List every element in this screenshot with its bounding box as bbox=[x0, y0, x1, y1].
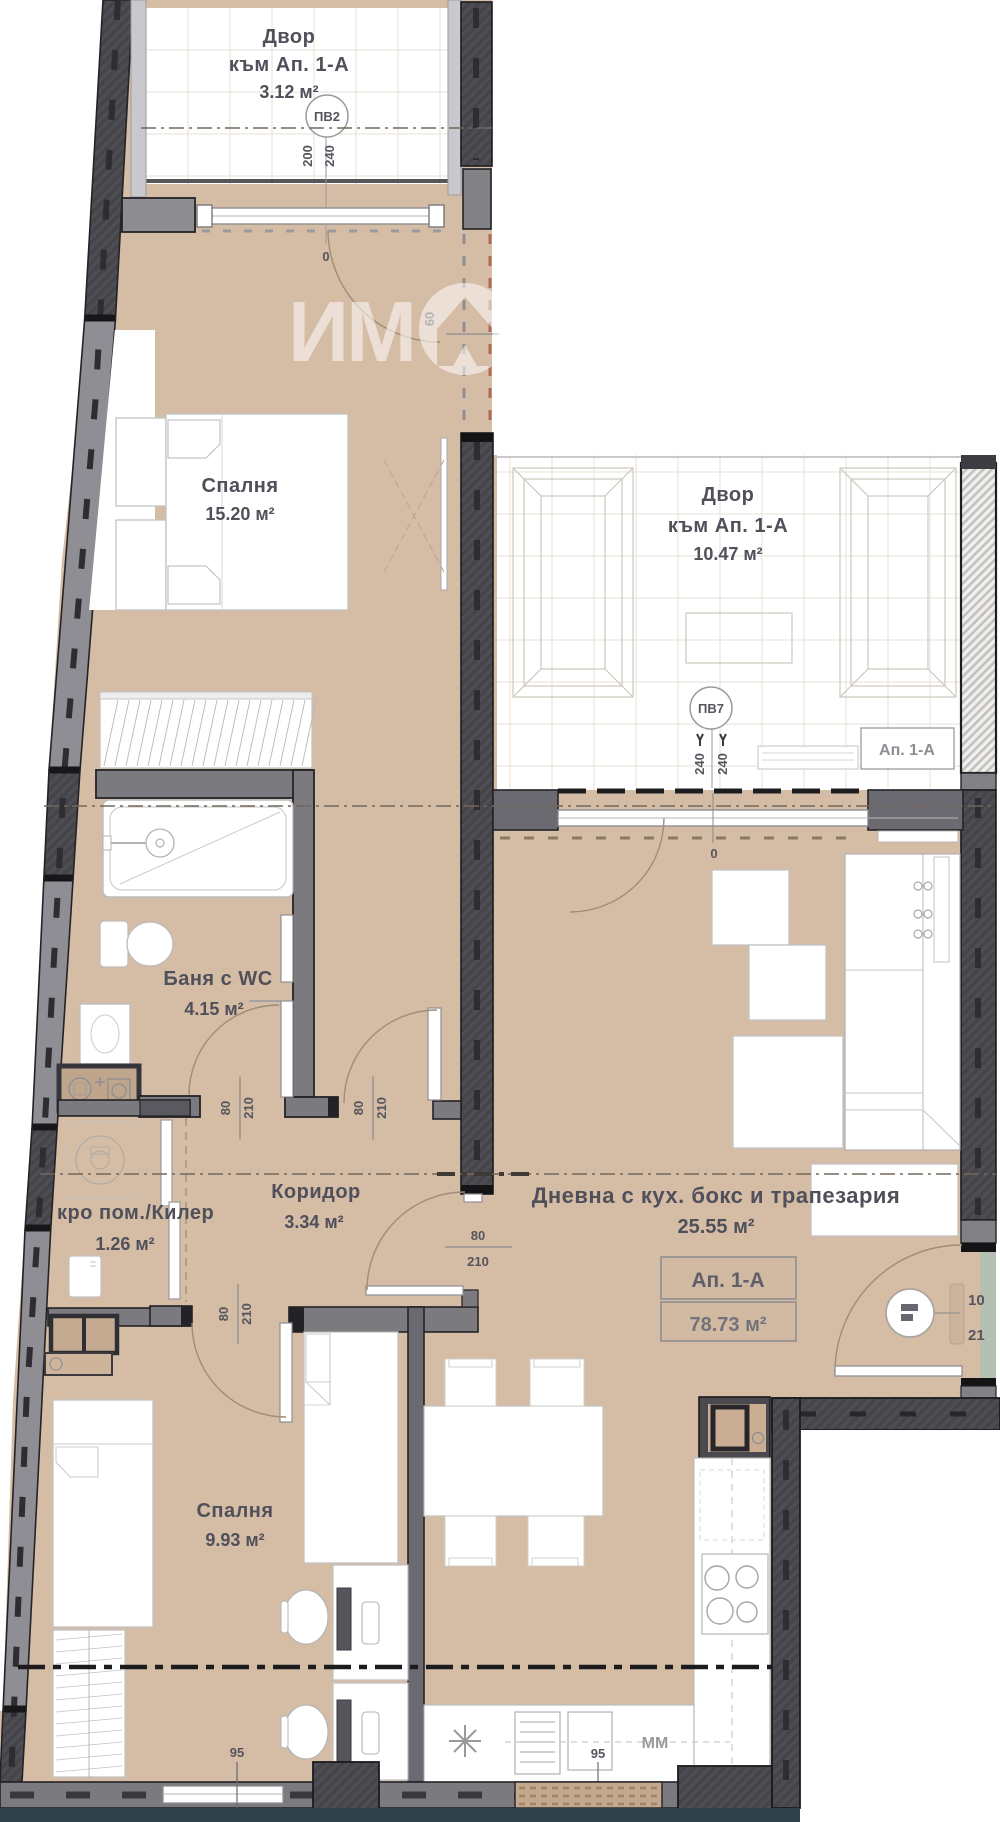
svg-text:240: 240 bbox=[692, 753, 707, 775]
svg-text:към Ап. 1-А: към Ап. 1-А bbox=[668, 515, 788, 537]
svg-text:Двор: Двор bbox=[702, 484, 755, 506]
svg-text:21: 21 bbox=[968, 1327, 985, 1344]
svg-text:Ап. 1-А: Ап. 1-А bbox=[879, 742, 935, 759]
svg-text:Двор: Двор bbox=[263, 26, 316, 48]
svg-text:210: 210 bbox=[241, 1097, 256, 1119]
svg-text:25.55 м²: 25.55 м² bbox=[677, 1216, 754, 1238]
svg-text:95: 95 bbox=[591, 1746, 605, 1761]
svg-text:240: 240 bbox=[322, 145, 337, 167]
svg-text:1.26 м²: 1.26 м² bbox=[95, 1234, 154, 1254]
svg-text:кро пом./Килер: кро пом./Килер bbox=[57, 1202, 214, 1224]
svg-text:Баня с WC: Баня с WC bbox=[163, 968, 272, 990]
svg-text:3.12 м²: 3.12 м² bbox=[259, 82, 318, 102]
svg-text:80: 80 bbox=[351, 1101, 366, 1115]
svg-text:10: 10 bbox=[968, 1292, 985, 1309]
svg-text:Коридор: Коридор bbox=[271, 1181, 361, 1203]
svg-text:Ап. 1-А: Ап. 1-А bbox=[691, 1269, 764, 1292]
svg-text:80: 80 bbox=[471, 1228, 485, 1243]
svg-text:9.93 м²: 9.93 м² bbox=[205, 1530, 264, 1550]
svg-text:3.34 м²: 3.34 м² bbox=[284, 1212, 343, 1232]
svg-text:78.73 м²: 78.73 м² bbox=[689, 1314, 766, 1336]
svg-text:210: 210 bbox=[374, 1097, 389, 1119]
svg-text:200: 200 bbox=[300, 145, 315, 167]
svg-text:Дневна с кух. бокс и трапезари: Дневна с кух. бокс и трапезария bbox=[532, 1183, 901, 1208]
svg-text:Спалня: Спалня bbox=[196, 1500, 273, 1522]
svg-text:Спалня: Спалня bbox=[201, 475, 278, 497]
svg-text:0: 0 bbox=[322, 249, 329, 264]
svg-text:10.47 м²: 10.47 м² bbox=[693, 544, 762, 564]
svg-text:към Ап. 1-А: към Ап. 1-А bbox=[229, 54, 349, 76]
svg-text:ПВ2: ПВ2 bbox=[314, 109, 340, 124]
svg-text:ИМ: ИМ bbox=[288, 285, 414, 380]
svg-text:0: 0 bbox=[710, 846, 717, 861]
svg-text:80: 80 bbox=[216, 1307, 231, 1321]
svg-text:80: 80 bbox=[218, 1101, 233, 1115]
svg-text:ПВ7: ПВ7 bbox=[698, 701, 724, 716]
svg-text:240: 240 bbox=[715, 753, 730, 775]
svg-text:ММ: ММ bbox=[642, 1735, 669, 1752]
svg-text:15.20 м²: 15.20 м² bbox=[205, 504, 274, 524]
svg-text:210: 210 bbox=[467, 1254, 489, 1269]
svg-text:95: 95 bbox=[230, 1745, 244, 1760]
svg-text:210: 210 bbox=[239, 1303, 254, 1325]
